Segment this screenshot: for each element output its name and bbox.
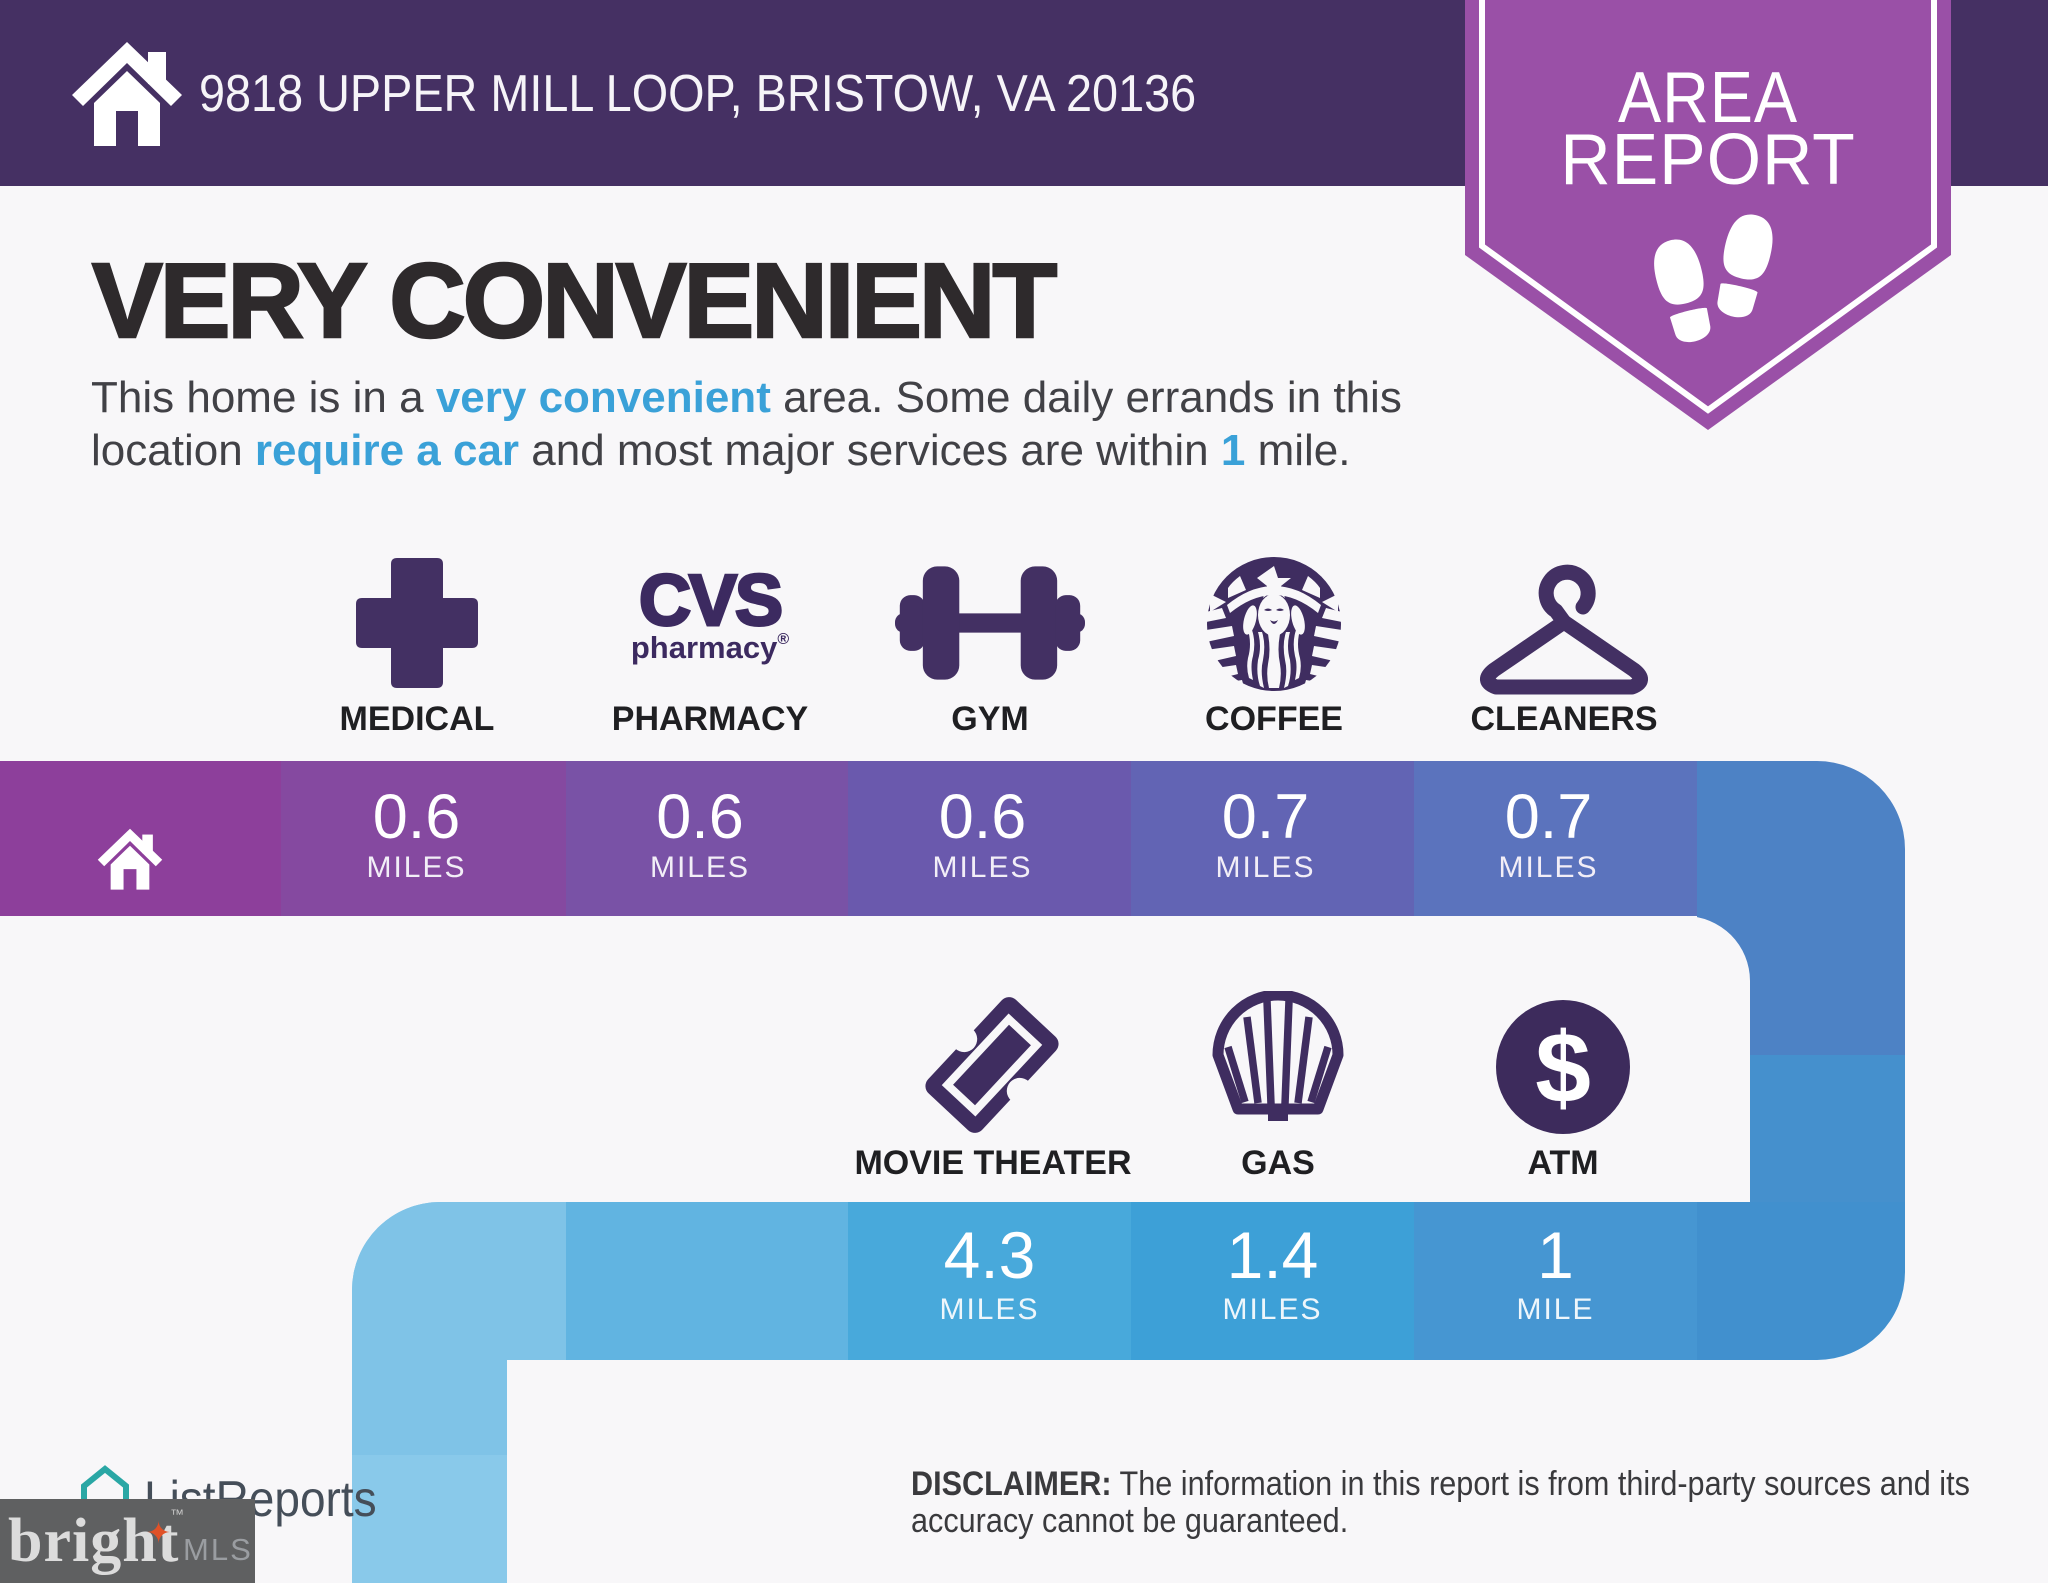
svg-text:$: $ (1535, 1012, 1591, 1124)
